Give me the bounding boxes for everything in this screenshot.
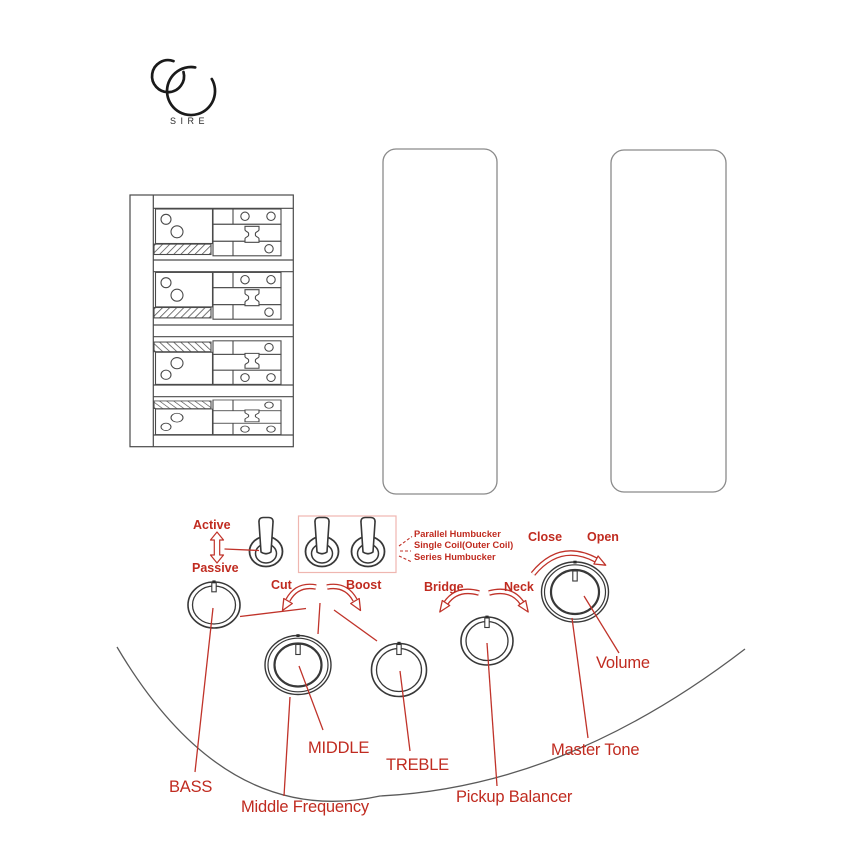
bridge-neck-arrows xyxy=(440,591,528,612)
volume-label: Volume xyxy=(596,655,650,672)
volume-and-master-tone-stacked-knob xyxy=(542,561,609,622)
coil-mode-callout-lines xyxy=(399,537,412,563)
active-passive-double-arrow xyxy=(211,532,224,563)
middle-frequency-label: Middle Frequency xyxy=(241,799,369,816)
neck-coil-mode-toggle-switch xyxy=(306,518,339,567)
middle-label: MIDDLE xyxy=(308,740,369,757)
close-label: Close xyxy=(528,531,562,544)
bridge-drawing xyxy=(130,195,293,447)
active-passive-toggle-switch xyxy=(250,518,283,567)
neck-pickup xyxy=(383,149,497,494)
treble-knob xyxy=(372,642,427,697)
boost-label: Boost xyxy=(346,579,381,592)
open-label: Open xyxy=(587,531,619,544)
treble-label: TREBLE xyxy=(386,757,449,774)
bass-knob xyxy=(188,580,240,628)
neck-label: Neck xyxy=(504,581,534,594)
bridge-label: Bridge xyxy=(424,581,464,594)
sire-logo-icon xyxy=(152,60,215,115)
middle-and-middle-frequency-stacked-knob xyxy=(265,634,331,694)
cut-label: Cut xyxy=(271,579,292,592)
parallel-humbucker-label: Parallel Humbucker xyxy=(414,529,513,540)
coil-mode-legend: Parallel Humbucker Single Coil(Outer Coi… xyxy=(414,529,513,563)
bridge-pickup xyxy=(611,150,726,492)
passive-label: Passive xyxy=(192,562,239,575)
bass-label: BASS xyxy=(169,779,212,796)
sire-bass-controls-diagram: SIRE Active Passive Parallel Humbucker S… xyxy=(0,0,863,863)
pickup-balancer-knob xyxy=(461,616,513,665)
bridge-coil-mode-toggle-switch xyxy=(352,518,385,567)
sire-logo-text: SIRE xyxy=(170,117,209,126)
master-tone-label: Master Tone xyxy=(551,742,639,759)
active-label: Active xyxy=(193,519,231,532)
single-coil-label: Single Coil(Outer Coil) xyxy=(414,540,513,551)
diagram-line-art xyxy=(0,0,863,863)
series-humbucker-label: Series Humbucker xyxy=(414,552,513,563)
pickup-balancer-label: Pickup Balancer xyxy=(456,789,572,806)
